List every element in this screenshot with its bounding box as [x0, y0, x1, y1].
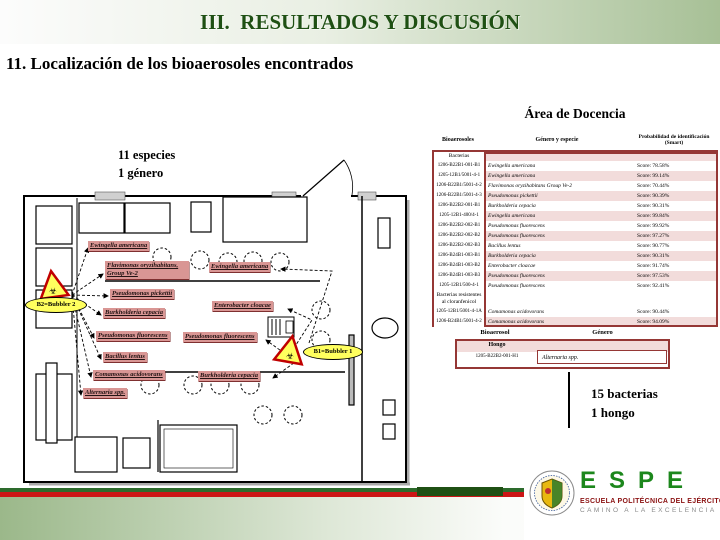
plan-label: Alternaria spp. [83, 388, 127, 398]
hongo-table-body: Hongo 1205-B22B2-001-H1 Alternaria spp. [455, 339, 670, 369]
table-category-row: Bacterias resistentes al cloranfenicol [434, 291, 718, 307]
table-row: 1205-12B1/500-4-1Pseudomonas fluorescens… [434, 281, 718, 291]
area-docencia-title: Área de Docencia [440, 106, 710, 122]
table-row: 1206-B22B2-002-B3Bacillus lentusScore: 9… [434, 241, 718, 251]
footer-darkgreen-segment [417, 487, 503, 496]
table-category-row: Bacterias [434, 152, 718, 161]
table-row: 1206-B24B1-003-B2Enterobacter cloacaeSco… [434, 261, 718, 271]
section-title: 11. Localización de los bioaerosoles enc… [6, 54, 353, 74]
col-genero: Género [535, 326, 670, 339]
plan-label: Pseudomonas fluorescens [183, 332, 257, 342]
plan-label: Flavimonas oryzihabitans, Group Ve-2 [105, 261, 189, 279]
plan-label: Burkholderia cepacia [103, 308, 165, 318]
table-row: 1206-B24B1-003-B3Pseudomonas fluorescens… [434, 271, 718, 281]
hongo-code: 1205-B22B2-001-H1 [457, 354, 537, 359]
slide: III. RESULTADOS Y DISCUSIÓN 11. Localiza… [0, 0, 720, 540]
table-row: 1206-B22B1-001-B1Ewingella americanaScor… [434, 161, 718, 171]
table-row: 1206-B22B2-002-B2Pseudomonas fluorescens… [434, 231, 718, 241]
plan-label: Pseudomonas fluorescens [96, 331, 170, 341]
espe-logo: ESPE ESCUELA POLITÉCNICA DEL EJÉRCITO CA… [524, 455, 720, 540]
col-probabilidad: Probabilidad de identificación (Smart) [630, 130, 718, 150]
col-bioaerosol: Bioaerosol [455, 326, 535, 339]
plan-label: Enterobacter cloacae [212, 301, 273, 311]
callout-line [568, 372, 570, 428]
table-row: 1205-12B1/5001-4-1Ewingella americanaSco… [434, 171, 718, 181]
plan-label: Ewingella americana [88, 241, 149, 251]
hongo-table-header: Bioaerosol Género [455, 326, 670, 339]
floorplan: ☣ ☣ Ewingella americana Flavimonas oryzi… [22, 150, 412, 490]
plan-label: Burkholderia cepacia [198, 371, 260, 381]
docencia-table-header: Bioaerosoles Género y especie Probabilid… [432, 130, 718, 150]
col-bioaerosoles: Bioaerosoles [432, 130, 484, 150]
table-row: 1206-B22B2-002-B1Pseudomonas fluorescens… [434, 221, 718, 231]
bacteria-count: 15 bacterias [591, 385, 658, 404]
table-row: 1206-B22B1/5001-4-3Pseudomonas pickettii… [434, 191, 718, 201]
slide-header: III. RESULTADOS Y DISCUSIÓN [0, 0, 720, 44]
espe-motto: CAMINO A LA EXCELENCIA [580, 507, 717, 514]
table-row: 1205-12B1-400/4-1Ewingella americanaScor… [434, 211, 718, 221]
table-row: 1205-12B1/5001-4-1AComamonas acidovorans… [434, 307, 718, 317]
plan-label: Ewingella americana [209, 262, 270, 272]
table-row: 1206-B22B1/5001-4-2Flavimonas oryzihabit… [434, 181, 718, 191]
hongo-species: Alternaria spp. [537, 350, 667, 364]
hongo-table: Bioaerosol Género Hongo 1205-B22B2-001-H… [455, 326, 670, 369]
plan-label: Bacillus lentus [103, 352, 147, 362]
col-genero-especie: Género y especie [484, 130, 630, 150]
espe-wordmark: ESPE [580, 467, 696, 495]
espe-school-name: ESCUELA POLITÉCNICA DEL EJÉRCITO [580, 498, 720, 505]
slide-title: III. RESULTADOS Y DISCUSIÓN [200, 10, 520, 35]
svg-text:☣: ☣ [49, 286, 57, 296]
docencia-table-body: Bacterias 1206-B22B1-001-B1Ewingella ame… [432, 150, 718, 327]
espe-crest-icon [528, 469, 576, 517]
floorplan-drawing: ☣ ☣ [22, 150, 412, 490]
plan-label: Comamonas acidovorans [93, 370, 165, 380]
bacteria-summary: 15 bacterias 1 hongo [591, 385, 658, 423]
table-row: 1206-B22B2-001-B1Burkholderia cepaciaSco… [434, 201, 718, 211]
docencia-table: Bioaerosoles Género y especie Probabilid… [432, 130, 718, 327]
svg-text:☣: ☣ [286, 351, 294, 361]
table-row: 1206-B24B1-003-B1Burkholderia cepaciaSco… [434, 251, 718, 261]
door [301, 160, 353, 199]
bubbler1-label: B1=Bubbler 1 [303, 344, 363, 360]
plan-label: Pseudomonas pickettii [110, 289, 174, 299]
fungus-count: 1 hongo [591, 404, 658, 423]
sampler-equipment [268, 317, 294, 337]
hongo-category: Hongo [457, 342, 537, 348]
bubbler2-label: B2=Bubbler 2 [25, 297, 87, 313]
